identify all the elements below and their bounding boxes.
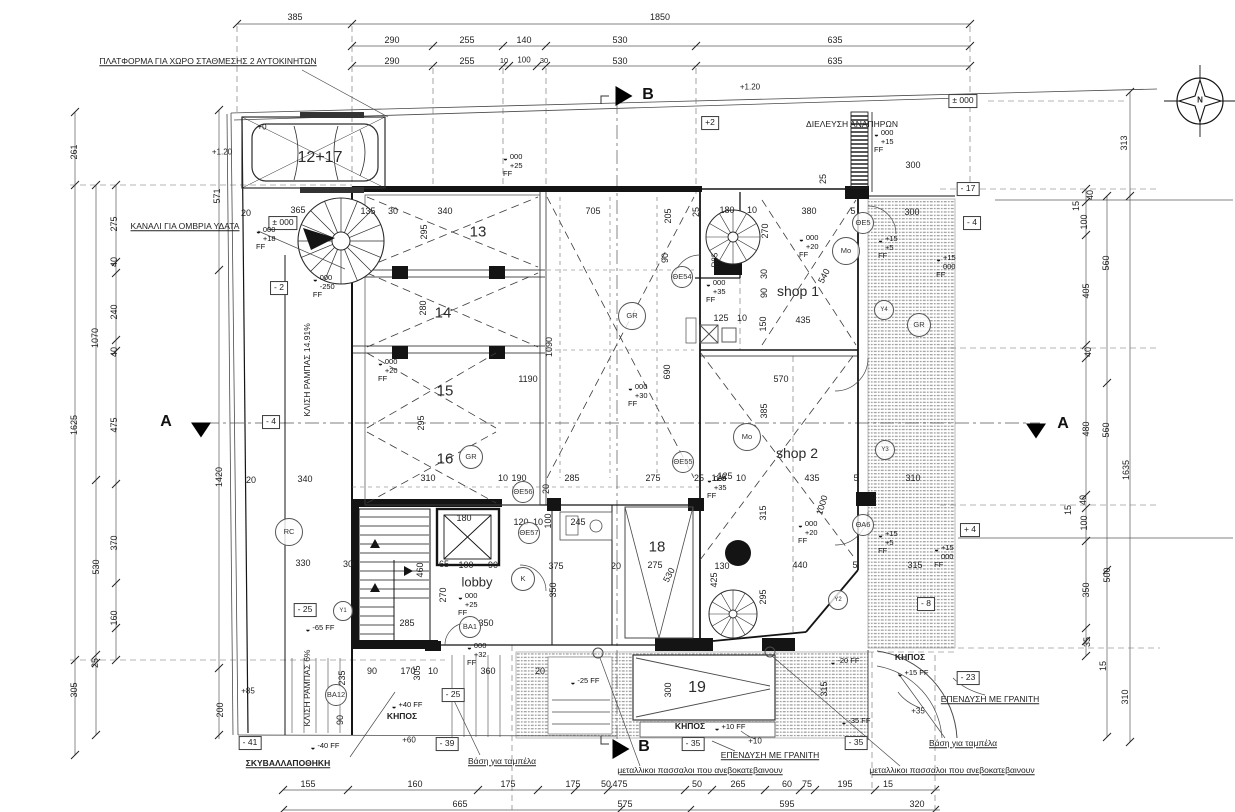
section-label: B <box>642 86 654 104</box>
level-marker: 000 +18 FF <box>256 226 280 252</box>
dimension-label: 310 <box>1120 689 1130 704</box>
dimension-label: 15 <box>1071 201 1081 211</box>
reference-tag: Mo <box>832 237 860 265</box>
dimension-label: 560 <box>1101 422 1111 437</box>
dimension-label: 280 <box>418 300 428 315</box>
dimension-label: 40 <box>1078 495 1088 505</box>
dimension-label: 705 <box>585 206 600 216</box>
dimension-label: 1850 <box>650 12 670 22</box>
dimension-label: 150 <box>758 316 768 331</box>
dimension-label: 435 <box>804 473 819 483</box>
reference-tag: Y4 <box>874 300 894 320</box>
annotation-note: ΚΗΠΟΣ <box>387 712 417 722</box>
dimension-label: 135 <box>360 206 375 216</box>
dimension-label: 30 <box>388 206 398 216</box>
dimension-label: 50 <box>601 779 611 789</box>
section-arrow-icon <box>613 739 630 759</box>
dimension-label: 255 <box>459 56 474 66</box>
dimension-label: 313 <box>1119 135 1129 150</box>
level-marker: 000 +35 FF <box>707 475 731 501</box>
level-box: - 17 <box>957 182 980 196</box>
level-marker: 000 -250 FF <box>313 274 339 300</box>
spot-elevation: +10 <box>748 738 762 747</box>
dimension-label: 370 <box>109 535 119 550</box>
dimension-label: 40 <box>1083 347 1093 357</box>
dimension-label: 140 <box>516 35 531 45</box>
level-marker: -25 FF <box>571 677 600 687</box>
room-label: 12+17 <box>298 149 343 167</box>
north-letter: N <box>1197 97 1203 106</box>
dimension-label: 205 <box>663 208 673 223</box>
room-label: lobby <box>461 576 492 591</box>
dimension-label: 300 <box>904 207 919 217</box>
level-box: - 25 <box>294 603 317 617</box>
reference-tag: BA1 <box>459 616 481 638</box>
annotation-note: μεταλλικοι πασσαλοι που ανεβοκατεβαινουν <box>869 766 1034 776</box>
level-box: - 8 <box>917 597 935 611</box>
dimension-label: 180 <box>719 205 734 215</box>
dimension-label: 100 <box>517 57 530 66</box>
dimension-label: 50 <box>692 779 702 789</box>
reference-tag: GR <box>618 302 646 330</box>
dimension-label: 315 <box>907 560 922 570</box>
dimension-label: 635 <box>827 56 842 66</box>
dimension-label: 40 <box>1085 190 1095 200</box>
reference-tag: Y1 <box>333 601 353 621</box>
dimension-label: 330 <box>295 558 310 568</box>
dimension-label: 665 <box>452 799 467 809</box>
dimension-label: 90 <box>759 288 769 298</box>
level-marker: +40 FF <box>392 701 423 711</box>
level-box: - 25 <box>442 688 465 702</box>
dimension-label: 90 <box>488 560 498 570</box>
dimension-label: 20 <box>246 475 256 485</box>
dimension-label: 310 <box>905 473 920 483</box>
reference-tag: ΘΕ55 <box>672 451 694 473</box>
dimension-label: 175 <box>565 779 580 789</box>
level-marker: 000 +30 FF <box>628 383 652 409</box>
level-marker: -35 FF <box>842 717 871 727</box>
dimension-label: 380 <box>801 206 816 216</box>
reference-tag: BA12 <box>325 684 347 706</box>
dimension-label: 275 <box>645 473 660 483</box>
dimension-label: 290 <box>384 35 399 45</box>
dimension-label: 530 <box>612 35 627 45</box>
dimension-label: 275 <box>647 560 662 570</box>
reference-tag: ΘΕ56 <box>512 481 534 503</box>
dimension-label: 425 <box>709 572 719 587</box>
dimension-label: 10 <box>428 666 438 676</box>
dimension-label: 15 <box>1063 505 1073 515</box>
dimension-label: 530 <box>661 566 677 584</box>
spot-elevation: +1.20 <box>740 84 760 93</box>
dimension-label: 25 <box>694 473 704 483</box>
level-marker: +15 FF <box>898 669 929 679</box>
level-marker: 000 +35 FF <box>706 279 730 305</box>
dimension-label: 170 <box>400 666 415 676</box>
dimension-label: 270 <box>438 587 448 602</box>
dimension-label: 65 <box>439 559 449 569</box>
level-marker: +15 +5 FF <box>878 530 898 556</box>
dimension-label: 30 <box>540 57 548 65</box>
dimension-label: 100 <box>1079 515 1089 530</box>
spot-elevation: +1.20 <box>212 149 232 158</box>
dimension-label: 340 <box>437 206 452 216</box>
level-marker: 000 +25 FF <box>458 592 482 618</box>
dimension-label: 295 <box>419 224 429 239</box>
section-arrow-icon <box>616 86 633 106</box>
dimension-label: 305 <box>69 682 79 697</box>
level-marker: -40 FF <box>311 742 340 752</box>
dimension-label: 20 <box>241 208 251 218</box>
spot-elevation: R85 <box>712 253 721 268</box>
room-label: shop 1 <box>777 284 819 300</box>
dimension-label: 180 <box>456 513 471 523</box>
dimension-label: 365 <box>290 205 305 215</box>
level-box: + 4 <box>960 523 980 537</box>
dimension-label: 270 <box>760 223 770 238</box>
dimension-label: 20 <box>611 561 621 571</box>
annotation-note: ΚΗΠΟΣ <box>675 722 705 732</box>
dimension-label: 635 <box>827 35 842 45</box>
reference-tag: RC <box>275 518 303 546</box>
dimension-label: 1420 <box>214 467 224 487</box>
annotation-note: ΣΚΥΒΑΛΛΑΠΟΘΗΚΗ <box>246 759 330 769</box>
dimension-label: 1000 <box>814 494 829 516</box>
dimension-label: 195 <box>837 779 852 789</box>
dimension-label: 40 <box>109 347 119 357</box>
dimension-label: 160 <box>407 779 422 789</box>
reference-tag: Y2 <box>828 590 848 610</box>
dimension-label: 25 <box>818 174 828 184</box>
annotation-note: μεταλλικοι πασσαλοι που ανεβοκατεβαινουν <box>617 766 782 776</box>
annotation-note: ΠΛΑΤΦΟΡΜΑ ΓΙΑ ΧΩΡΟ ΣΤΑΘΜΕΣΗΣ 2 ΑΥΤΟΚΙΝΗΤ… <box>99 57 316 67</box>
dimension-label: 295 <box>758 589 768 604</box>
dimension-label: 285 <box>564 473 579 483</box>
annotation-note: ΚΗΠΟΣ <box>895 653 925 663</box>
dimension-label: 235 <box>337 670 347 685</box>
dimension-label: 1090 <box>544 337 554 357</box>
dimension-label: 475 <box>612 779 627 789</box>
dimension-label: 30 <box>343 559 353 569</box>
dimension-label: 30 <box>759 269 769 279</box>
dimension-label: 385 <box>759 403 769 418</box>
dimension-label: 5 <box>852 560 857 570</box>
room-label: 13 <box>470 225 487 242</box>
dimension-label: 125 <box>713 313 728 323</box>
level-marker: +15 000 FF <box>934 544 958 570</box>
level-box: - 23 <box>957 671 980 685</box>
dimension-label: 1635 <box>1121 460 1131 480</box>
reference-tag: GR <box>459 445 483 469</box>
reference-tag: ΘΕ54 <box>671 266 693 288</box>
level-box: - 35 <box>682 737 705 751</box>
reference-tag: GR <box>907 313 931 337</box>
dimension-label: 10 <box>736 473 746 483</box>
dimension-label: 160 <box>109 610 119 625</box>
dimension-label: 25 <box>90 658 100 668</box>
level-marker: 000 +15 FF <box>874 129 898 155</box>
spot-elevation: +0 <box>257 124 266 133</box>
dimension-label: 285 <box>399 618 414 628</box>
dimension-label: 1625 <box>69 415 79 435</box>
level-box: - 41 <box>239 736 262 750</box>
dimension-label: 10 <box>498 473 508 483</box>
level-marker: -20 FF <box>831 657 860 667</box>
dimension-label: 350 <box>548 582 558 597</box>
level-marker: +15 000 FF <box>936 254 960 280</box>
dimension-label: 275 <box>109 216 119 231</box>
reference-tag: K <box>511 567 535 591</box>
dimension-label: 175 <box>500 779 515 789</box>
dimension-label: 315 <box>819 681 829 696</box>
dimension-label: 500 <box>1102 567 1112 582</box>
level-box: - 4 <box>262 415 280 429</box>
dimension-label: 571 <box>212 188 222 203</box>
dimension-label: 255 <box>459 35 474 45</box>
room-label: shop 2 <box>776 446 818 462</box>
reference-tag: Y3 <box>875 440 895 460</box>
room-label: 15 <box>437 384 454 401</box>
dimension-label: 405 <box>1081 283 1091 298</box>
dimension-label: 15 <box>883 779 893 789</box>
spot-elevation: +85 <box>241 688 255 697</box>
dimension-label: 560 <box>1101 255 1111 270</box>
dimension-label: 200 <box>215 702 225 717</box>
dimension-label: 690 <box>662 364 672 379</box>
dimension-label: 240 <box>109 304 119 319</box>
dimension-label: 435 <box>795 315 810 325</box>
dimension-label: 1070 <box>90 328 100 348</box>
dimension-label: 40 <box>109 257 119 267</box>
dimension-label: 90 <box>660 253 670 263</box>
dimension-label: 300 <box>905 160 920 170</box>
dimension-label: 5 <box>853 473 858 483</box>
level-marker: 000 +20 FF <box>798 520 822 546</box>
dimension-label: 100 <box>458 560 473 570</box>
dimension-label: 340 <box>297 474 312 484</box>
dimension-label: 290 <box>384 56 399 66</box>
dimension-label: 460 <box>415 562 425 577</box>
annotation-note: ΚΛΙΣΗ ΡΑΜΠΑΣ 14.91% <box>303 323 313 417</box>
dimension-label: 475 <box>109 417 119 432</box>
dimension-label: 265 <box>730 779 745 789</box>
dimension-label: 530 <box>91 559 101 574</box>
level-marker: +15 +5 FF <box>878 235 898 261</box>
room-label: 18 <box>649 540 666 557</box>
reference-tag: ΘΕ57 <box>518 522 540 544</box>
spot-elevation: +60 <box>402 737 416 746</box>
floor-plan-drawing: N 38518502902551405306352902551010030530… <box>0 0 1235 812</box>
dimension-label: 100 <box>1079 214 1089 229</box>
dimension-label: 15 <box>1098 661 1108 671</box>
level-marker: 000 +32 FF <box>467 642 491 668</box>
dimension-label: 315 <box>758 505 768 520</box>
level-box: - 4 <box>963 216 981 230</box>
dimension-label: 155 <box>300 779 315 789</box>
dimension-label: 570 <box>773 374 788 384</box>
dimension-label: 440 <box>792 560 807 570</box>
dimension-label: 90 <box>367 666 377 676</box>
level-box: ± 000 <box>948 94 977 108</box>
section-label: A <box>160 413 172 431</box>
dimension-label: 90 <box>335 715 345 725</box>
annotation-note: Βάση για ταμπέλα <box>929 739 997 749</box>
dimension-label: 375 <box>548 561 563 571</box>
dimension-label: 300 <box>663 682 673 697</box>
annotation-note: Βάση για ταμπέλα <box>468 757 536 767</box>
section-label: B <box>638 738 650 756</box>
level-marker: 000 +20 FF <box>378 358 402 384</box>
dimension-label: 20 <box>541 484 551 494</box>
dimension-label: 295 <box>416 415 426 430</box>
dimension-label: 350 <box>1081 582 1091 597</box>
dimension-label: 385 <box>287 12 302 22</box>
room-label: 14 <box>435 306 452 323</box>
reference-tag: ΘΕ5 <box>852 212 874 234</box>
level-marker: -65 FF <box>306 624 335 634</box>
room-label: 19 <box>688 679 706 697</box>
spot-elevation: +35 <box>911 708 925 717</box>
dimension-label: 575 <box>617 799 632 809</box>
dimension-label: 10 <box>747 205 757 215</box>
reference-tag: ΘΑ6 <box>852 514 874 536</box>
dimension-label: 245 <box>570 517 585 527</box>
dimension-label: 100 <box>543 513 553 528</box>
dimension-label: 130 <box>714 561 729 571</box>
dimension-label: 20 <box>535 666 545 676</box>
dimension-label: 1190 <box>518 374 537 384</box>
dimension-label: 75 <box>802 779 812 789</box>
dimension-label: 10 <box>737 313 747 323</box>
annotation-note: ΕΠΕΝΔΥΣΗ ΜΕ ΓΡΑΝΙΤΗ <box>941 695 1039 705</box>
annotation-note: ΕΠΕΝΔΥΣΗ ΜΕ ΓΡΑΝΙΤΗ <box>721 751 819 761</box>
dimension-label: 10 <box>500 57 508 65</box>
annotation-note: ΚΑΝΑΛΙ ΓΙΑ ΟΜΒΡΙΑ ΥΔΑΤΑ <box>131 222 240 232</box>
dimension-label: 261 <box>69 144 79 159</box>
section-label: A <box>1057 415 1069 433</box>
level-box: - 2 <box>270 281 288 295</box>
dimension-label: 60 <box>782 779 792 789</box>
section-arrow-icon <box>1026 424 1046 439</box>
dimension-label: 480 <box>1081 421 1091 436</box>
dimension-label: 595 <box>779 799 794 809</box>
room-label: 16 <box>437 452 454 469</box>
level-box: - 39 <box>436 737 459 751</box>
level-marker: 000 +20 FF <box>799 234 823 260</box>
labels-layer: N 38518502902551405306352902551010030530… <box>0 0 1235 812</box>
dimension-label: 25 <box>691 207 701 217</box>
section-arrow-icon <box>191 423 211 438</box>
dimension-label: 310 <box>420 473 435 483</box>
reference-tag: Mo <box>733 423 761 451</box>
annotation-note: ΚΛΙΣΗ ΡΑΜΠΑΣ 6% <box>303 650 313 727</box>
dimension-label: 35 <box>1082 637 1092 647</box>
level-box: +2 <box>701 116 719 130</box>
level-marker: +10 FF <box>715 723 746 733</box>
level-box: - 35 <box>845 736 868 750</box>
dimension-label: 530 <box>612 56 627 66</box>
level-marker: 000 +25 FF <box>503 153 527 179</box>
dimension-label: 320 <box>909 799 924 809</box>
